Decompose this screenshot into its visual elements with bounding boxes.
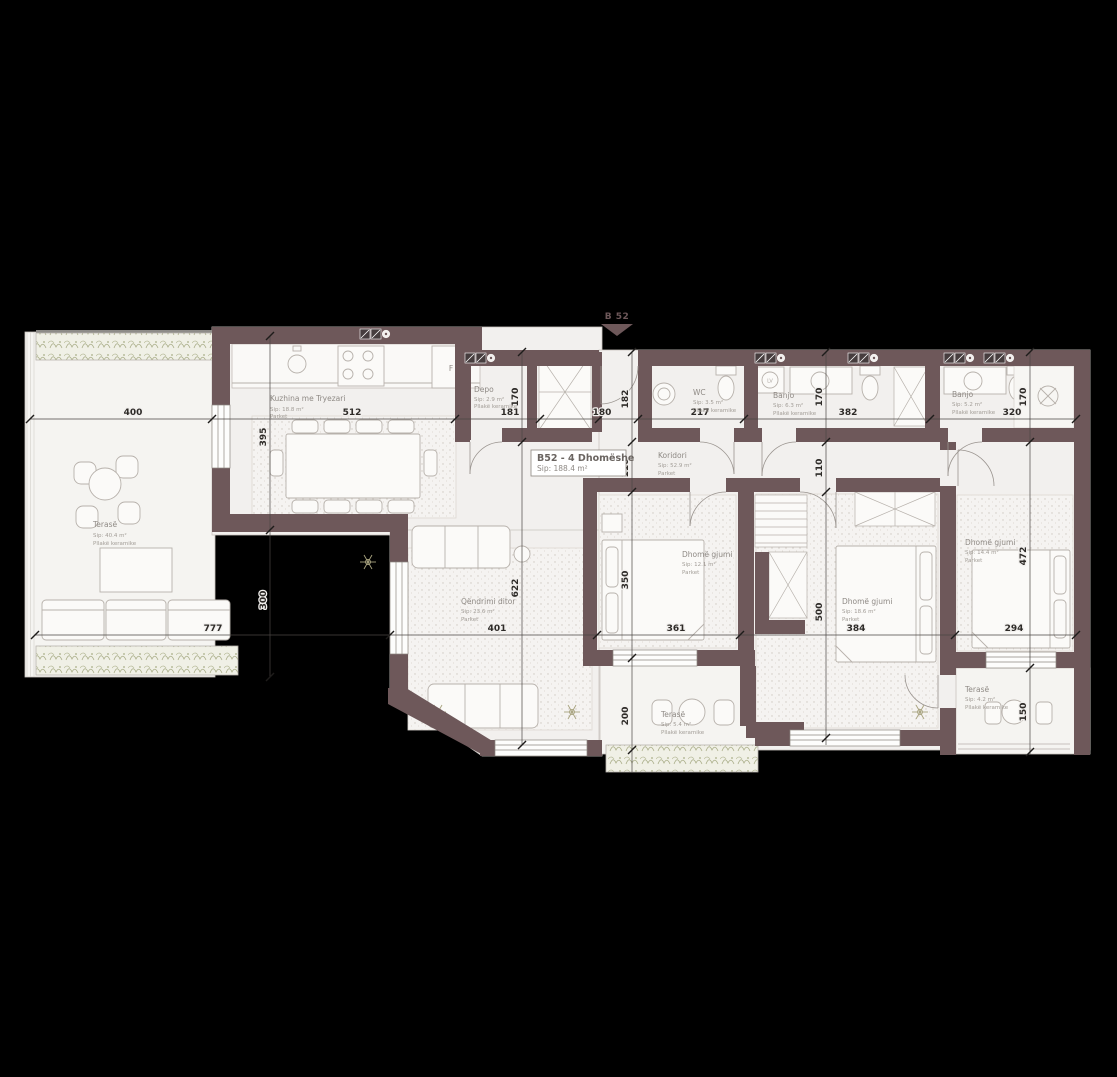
dim-182: 182 — [621, 390, 631, 409]
dim-395: 395 — [259, 428, 269, 447]
pillow — [606, 593, 618, 633]
dim-300: 300 — [259, 591, 269, 610]
svg-text:Sip: 52.9 m²: Sip: 52.9 m² — [658, 462, 692, 469]
dim-401: 401 — [488, 624, 507, 634]
svg-text:Sip: 4.2 m²: Sip: 4.2 m² — [965, 696, 995, 703]
dim-384: 384 — [847, 624, 866, 634]
unit-marker-label: B 52 — [605, 312, 630, 322]
sink — [653, 383, 675, 405]
svg-text:Pllakë keramike: Pllakë keramike — [474, 404, 518, 410]
wall-fixture-icon — [984, 353, 1015, 363]
svg-text:Sip: 5.4 m²: Sip: 5.4 m² — [661, 721, 691, 728]
window — [790, 730, 900, 746]
washer-label: LV — [767, 379, 773, 385]
svg-text:Banjo: Banjo — [773, 391, 795, 400]
dim-170b: 170 — [815, 388, 825, 407]
svg-text:Pllakë keramike: Pllakë keramike — [952, 410, 996, 416]
wall-fixture-icon — [465, 353, 496, 363]
svg-text:Parket: Parket — [270, 414, 288, 420]
toilet — [862, 376, 878, 400]
svg-text:Sip: 18.8 m²: Sip: 18.8 m² — [270, 406, 304, 413]
terrace-low-table — [100, 548, 172, 592]
dim-110b: 110 — [815, 459, 825, 478]
dining-chair — [356, 500, 382, 513]
wall-fixture-icon — [848, 353, 879, 363]
dining-chair — [324, 500, 350, 513]
unit-marker: B 52 — [601, 312, 633, 336]
pillow — [1054, 556, 1066, 594]
svg-text:Pllakë keramike: Pllakë keramike — [661, 730, 705, 736]
terrace-chair — [116, 456, 138, 478]
wall-fixture-icon — [944, 353, 975, 363]
dining-chair — [424, 450, 437, 476]
dim-777: 777 — [204, 624, 223, 634]
terrace-chair — [714, 700, 734, 725]
svg-text:Dhomë gjumi: Dhomë gjumi — [842, 597, 892, 606]
floor-plan-drawing: F — [0, 0, 1117, 1077]
svg-text:Kuzhina me Tryezari: Kuzhina me Tryezari — [270, 394, 345, 403]
svg-text:WC: WC — [693, 388, 706, 397]
dim-180: 180 — [593, 408, 612, 418]
svg-text:Sip: 14.4 m²: Sip: 14.4 m² — [965, 549, 999, 556]
svg-text:Pllakë keramike: Pllakë keramike — [93, 541, 137, 547]
svg-text:Parket: Parket — [842, 617, 860, 623]
nightstand — [602, 514, 622, 532]
toilet-tank — [716, 366, 736, 375]
pillow — [1054, 600, 1066, 638]
svg-text:Sip: 12.1 m²: Sip: 12.1 m² — [682, 561, 716, 568]
svg-text:Pllakë keramike: Pllakë keramike — [965, 705, 1009, 711]
window — [613, 650, 697, 666]
wall-fixture-icon — [755, 353, 786, 363]
svg-text:Banjo: Banjo — [952, 390, 974, 399]
fridge-label: F — [449, 364, 453, 373]
svg-text:Sip: 6.3 m²: Sip: 6.3 m² — [773, 402, 803, 409]
terrace-chair — [1036, 702, 1052, 724]
svg-text:Depo: Depo — [474, 385, 494, 394]
svg-text:Parket: Parket — [965, 558, 983, 564]
dim-472: 472 — [1019, 547, 1029, 566]
plant-icon — [360, 555, 376, 569]
dim-622: 622 — [511, 579, 521, 598]
dim-200: 200 — [621, 707, 631, 726]
svg-text:Sip: 2.9 m²: Sip: 2.9 m² — [474, 396, 504, 403]
terrace-bench — [168, 600, 230, 640]
toilet — [718, 376, 734, 400]
pillow — [920, 606, 932, 654]
svg-text:Parket: Parket — [658, 471, 676, 477]
dim-350: 350 — [621, 571, 631, 590]
svg-text:Sip: 23.6 m²: Sip: 23.6 m² — [461, 608, 495, 615]
dim-512: 512 — [343, 408, 362, 418]
dining-chair — [292, 420, 318, 433]
window — [986, 652, 1056, 668]
svg-text:Pllakë keramike: Pllakë keramike — [693, 408, 737, 414]
dim-150: 150 — [1019, 703, 1029, 722]
dining-chair — [388, 420, 414, 433]
svg-text:Parket: Parket — [682, 570, 700, 576]
svg-text:Terasë: Terasë — [964, 685, 990, 694]
svg-text:Dhomë gjumi: Dhomë gjumi — [682, 550, 732, 559]
svg-text:Pllakë keramike: Pllakë keramike — [773, 411, 817, 417]
dim-294: 294 — [1005, 624, 1024, 634]
pillow — [606, 547, 618, 587]
dim-170c: 170 — [1019, 388, 1029, 407]
terrace-chair — [118, 502, 140, 524]
svg-text:Parket: Parket — [461, 617, 479, 623]
dining-chair — [356, 420, 382, 433]
terrace-bench — [42, 600, 104, 640]
window — [495, 740, 587, 756]
dining-chair — [270, 450, 283, 476]
svg-text:Sip: 18.6 m²: Sip: 18.6 m² — [842, 608, 876, 615]
unit-marker-arrow-icon — [601, 324, 633, 336]
dining-chair — [324, 420, 350, 433]
dim-500: 500 — [815, 603, 825, 622]
svg-text:Dhomë gjumi: Dhomë gjumi — [965, 538, 1015, 547]
svg-text:Koridori: Koridori — [658, 451, 687, 460]
svg-text:Sip: 3.5 m²: Sip: 3.5 m² — [693, 399, 723, 406]
wall-fixture-icon — [360, 329, 391, 339]
dim-320: 320 — [1003, 408, 1022, 418]
window — [390, 562, 408, 654]
dim-382: 382 — [839, 408, 858, 418]
apartment-name: B52 - 4 Dhomëshe — [537, 453, 634, 464]
title-block: B52 - 4 Dhomëshe Sip: 188.4 m² — [531, 450, 634, 476]
svg-text:Sip: 5.2 m²: Sip: 5.2 m² — [952, 401, 982, 408]
floor-plan: F — [0, 0, 1117, 1077]
pillow — [920, 552, 932, 600]
dining-chair — [388, 500, 414, 513]
toilet-tank — [860, 366, 880, 375]
svg-text:Terasë: Terasë — [92, 520, 118, 529]
dining-chair — [292, 500, 318, 513]
svg-text:Sip: 40.4 m²: Sip: 40.4 m² — [93, 532, 127, 539]
svg-text:Terasë: Terasë — [660, 710, 686, 719]
planter-bottom-left — [36, 646, 238, 675]
planter-top-left — [36, 333, 214, 360]
window — [212, 405, 230, 468]
terrace-bench — [106, 600, 166, 640]
terrace-table — [89, 468, 121, 500]
dim-400: 400 — [124, 408, 143, 418]
sofa — [412, 526, 510, 568]
apartment-area: Sip: 188.4 m² — [537, 464, 588, 473]
dining-table — [286, 434, 420, 498]
svg-text:Qëndrimi ditor: Qëndrimi ditor — [461, 597, 516, 606]
planter-bottom-mid — [606, 745, 758, 772]
dim-361: 361 — [667, 624, 686, 634]
